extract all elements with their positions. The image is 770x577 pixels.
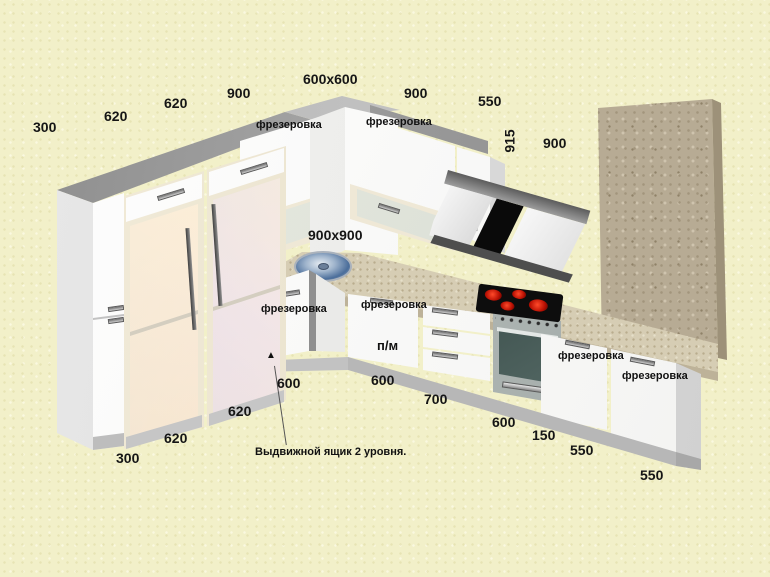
burner-2: [512, 289, 527, 300]
milling-label-wall-left: фрезеровка: [256, 119, 322, 131]
extractor-hood: [426, 170, 590, 288]
dim-filler-bottom: 150: [532, 427, 555, 443]
dim-end-left-top: 300: [33, 119, 56, 135]
milling-label-550-1: фрезеровка: [558, 350, 624, 362]
dim-corner-right-bottom: 600: [371, 372, 394, 388]
dim-hood-height: 915: [498, 133, 521, 149]
dim-oven-bottom: 600: [492, 414, 515, 430]
dim-hood-width: 900: [543, 135, 566, 151]
dim-corner-worktop: 900x900: [308, 227, 363, 243]
burner-4: [500, 301, 515, 312]
sink-drain: [318, 263, 329, 270]
burner-1: [484, 288, 502, 301]
milling-label-wall-right: фрезеровка: [366, 116, 432, 128]
dim-door2-bottom: 550: [640, 467, 663, 483]
dim-end-left-bottom: 300: [116, 450, 139, 466]
milling-label-550-2: фрезеровка: [622, 370, 688, 382]
dim-drawers-bottom: 700: [424, 391, 447, 407]
dim-door1-bottom: 550: [570, 442, 593, 458]
dim-corner-left-bottom: 600: [277, 375, 300, 391]
milling-label-base-right: фрезеровка: [361, 299, 427, 311]
dishwasher-label: п/м: [377, 338, 398, 353]
dim-wall-end-top: 550: [478, 93, 501, 109]
dim-tall1-top: 620: [104, 108, 127, 124]
drawer-marker: ▲: [266, 350, 276, 361]
milling-label-base-left: фрезеровка: [261, 303, 327, 315]
dim-tall2-top: 620: [164, 95, 187, 111]
dim-wall-left-top: 900: [227, 85, 250, 101]
dim-fridge2-bottom: 620: [228, 403, 251, 419]
dim-corner-top: 600x600: [303, 71, 358, 87]
dim-wall-right-top: 900: [404, 85, 427, 101]
drawer-annotation: Выдвижной ящик 2 уровня.: [255, 446, 406, 458]
burner-3: [528, 298, 548, 312]
dim-fridge1-bottom: 620: [164, 430, 187, 446]
kitchen-render: ▲ 300 620 620 900 600x600 900 550 915 90…: [0, 0, 770, 577]
